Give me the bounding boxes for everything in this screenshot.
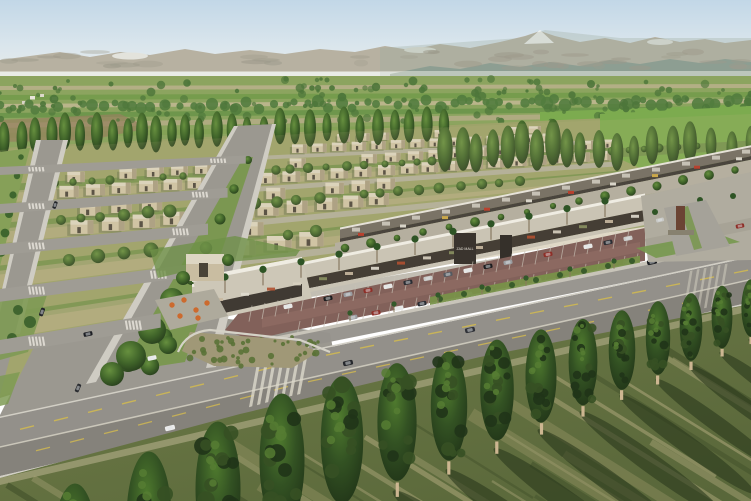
svg-text:ZAD MALL: ZAD MALL bbox=[456, 247, 473, 251]
